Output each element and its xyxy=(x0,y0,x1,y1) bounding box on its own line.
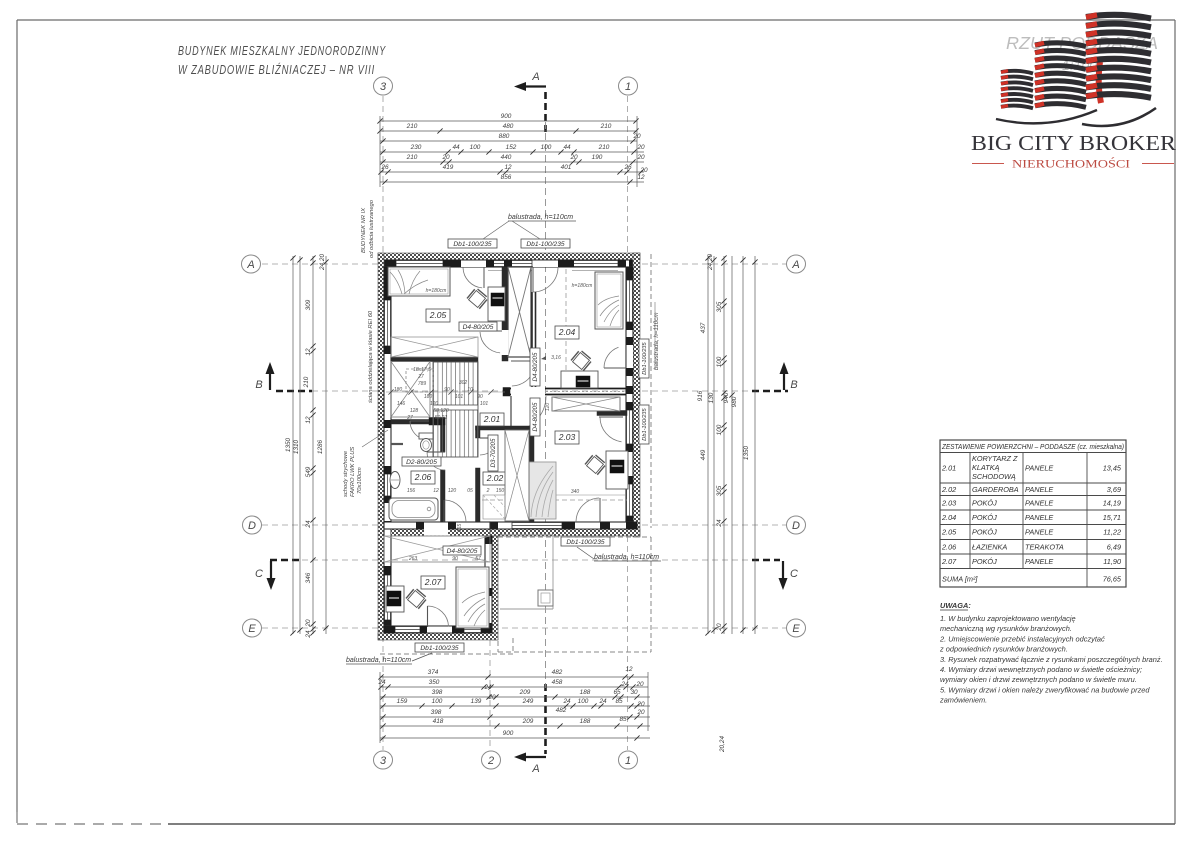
svg-text:12: 12 xyxy=(625,666,633,673)
svg-text:3: 3 xyxy=(380,81,387,93)
svg-text:398: 398 xyxy=(431,709,442,716)
svg-text:POKÓJ: POKÓJ xyxy=(972,557,997,566)
svg-text:940: 940 xyxy=(723,392,730,403)
svg-text:20: 20 xyxy=(636,701,645,708)
svg-text:ściana oddzielająca w klasi: ściana oddzielająca w klasie REI 60 xyxy=(368,310,374,403)
svg-text:398: 398 xyxy=(432,689,443,696)
svg-text:2.03: 2.03 xyxy=(941,498,956,507)
svg-text:h=180cm: h=180cm xyxy=(572,283,593,289)
svg-text:D: D xyxy=(248,520,256,532)
svg-text:26: 26 xyxy=(380,164,389,171)
svg-text:POKÓJ: POKÓJ xyxy=(972,498,997,507)
svg-text:NIERUCHOMOŚCI: NIERUCHOMOŚCI xyxy=(1012,157,1130,171)
svg-text:100: 100 xyxy=(578,698,589,705)
svg-text:14,19: 14,19 xyxy=(1103,498,1121,507)
svg-text:24: 24 xyxy=(305,630,312,639)
svg-text:50,21: 50,21 xyxy=(435,415,448,421)
svg-text:1350: 1350 xyxy=(743,445,750,460)
svg-text:A: A xyxy=(531,763,539,775)
svg-text:76,65: 76,65 xyxy=(1103,575,1122,584)
svg-text:180: 180 xyxy=(424,394,433,400)
svg-text:1: 1 xyxy=(625,755,631,767)
svg-text:11,90: 11,90 xyxy=(1103,557,1121,566)
svg-text:449: 449 xyxy=(700,449,707,460)
svg-text:20: 20 xyxy=(636,154,645,161)
svg-text:24: 24 xyxy=(620,681,629,688)
svg-text:24: 24 xyxy=(716,519,723,528)
svg-text:D2-80/205: D2-80/205 xyxy=(406,459,437,466)
svg-text:24,20: 24,20 xyxy=(707,254,714,271)
svg-text:balustrada, h=110cm: balustrada, h=110cm xyxy=(594,554,659,561)
svg-text:90: 90 xyxy=(452,556,458,562)
svg-text:Db1-100/235: Db1-100/235 xyxy=(642,341,648,374)
svg-text:PANELE: PANELE xyxy=(1025,485,1053,494)
svg-text:B: B xyxy=(255,379,262,391)
svg-text:D4-80/205: D4-80/205 xyxy=(532,352,539,381)
svg-text:12: 12 xyxy=(637,174,645,181)
svg-text:20: 20 xyxy=(569,154,578,161)
svg-text:2. Umiejscowienie przebić inst: 2. Umiejscowienie przebić instalacyjnych… xyxy=(939,634,1105,643)
svg-text:PANELE: PANELE xyxy=(1025,463,1053,472)
svg-text:419: 419 xyxy=(443,164,454,171)
svg-text:482: 482 xyxy=(556,707,567,714)
svg-text:C: C xyxy=(790,568,798,580)
svg-text:120: 120 xyxy=(430,401,439,407)
svg-text:20: 20 xyxy=(716,623,723,632)
svg-text:1286: 1286 xyxy=(317,439,324,454)
svg-text:3. Rysunek rozpatrywać łącznie: 3. Rysunek rozpatrywać łącznie z rysunka… xyxy=(940,655,1163,664)
svg-text:2.05: 2.05 xyxy=(941,528,957,537)
svg-text:2.07: 2.07 xyxy=(424,577,442,587)
svg-text:balustrada, h=110cm: balustrada, h=110cm xyxy=(508,214,573,221)
svg-text:2.01: 2.01 xyxy=(941,463,956,472)
svg-text:120: 120 xyxy=(545,403,551,412)
svg-text:437: 437 xyxy=(700,322,707,333)
svg-text:401: 401 xyxy=(561,164,572,171)
svg-text:4. Wymiary drzwi wewnętrznych: 4. Wymiary drzwi wewnętrznych podano w ś… xyxy=(940,665,1142,674)
svg-text:150: 150 xyxy=(496,488,505,494)
svg-text:190: 190 xyxy=(592,154,603,161)
svg-text:Db1-100/235: Db1-100/235 xyxy=(453,241,491,248)
svg-text:KLATKĄ: KLATKĄ xyxy=(972,463,1000,472)
svg-text:12: 12 xyxy=(504,164,512,171)
svg-text:20: 20 xyxy=(635,681,644,688)
svg-text:05: 05 xyxy=(467,488,473,494)
svg-text:100: 100 xyxy=(432,698,443,705)
svg-text:549: 549 xyxy=(305,466,312,477)
svg-text:zamówieniem.: zamówieniem. xyxy=(939,696,987,705)
svg-text:h=180cm: h=180cm xyxy=(426,288,447,294)
svg-text:90: 90 xyxy=(477,394,483,400)
svg-text:482: 482 xyxy=(552,669,563,676)
svg-text:210: 210 xyxy=(303,376,310,388)
svg-text:20: 20 xyxy=(487,694,496,701)
svg-text:100: 100 xyxy=(716,356,723,367)
svg-text:27: 27 xyxy=(406,415,413,421)
svg-text:PANELE: PANELE xyxy=(1025,498,1053,507)
svg-text:249: 249 xyxy=(522,698,534,705)
svg-text:100: 100 xyxy=(541,144,552,151)
svg-text:2.02: 2.02 xyxy=(941,485,956,494)
svg-text:305: 305 xyxy=(716,485,723,496)
svg-text:BIG CITY BROKER: BIG CITY BROKER xyxy=(971,131,1177,155)
svg-text:5. Wymiary drzwi i okien należ: 5. Wymiary drzwi i okien należy zweryfik… xyxy=(940,685,1150,694)
svg-text:W ZABUDOWIE BLIŹNIACZEJ –: W ZABUDOWIE BLIŹNIACZEJ – NR VIII xyxy=(178,62,375,77)
svg-text:65: 65 xyxy=(613,689,621,696)
svg-text:ZESTAWIENIE POWIERZCHNI – P: ZESTAWIENIE POWIERZCHNI – PODDASZE (cz. … xyxy=(941,442,1124,451)
svg-text:E: E xyxy=(248,623,256,635)
svg-text:480: 480 xyxy=(503,123,514,130)
svg-text:900: 900 xyxy=(503,730,514,737)
svg-text:balustrada, h=110cm: balustrada, h=110cm xyxy=(346,657,411,664)
svg-text:230: 230 xyxy=(410,144,422,151)
svg-text:2.02: 2.02 xyxy=(486,473,504,483)
svg-text:24,20: 24,20 xyxy=(319,254,326,271)
svg-text:PANELE: PANELE xyxy=(1025,513,1053,522)
svg-text:100: 100 xyxy=(716,424,723,435)
svg-text:139: 139 xyxy=(471,698,482,705)
svg-text:11,22: 11,22 xyxy=(1103,528,1121,537)
svg-text:BUDYNEK MIESZKALNY JEDNORODZ: BUDYNEK MIESZKALNY JEDNORODZINNY xyxy=(178,43,386,58)
svg-text:20: 20 xyxy=(305,619,312,628)
svg-text:2: 2 xyxy=(486,488,490,494)
svg-text:D3-70/205: D3-70/205 xyxy=(490,438,497,467)
svg-text:263: 263 xyxy=(408,556,418,562)
svg-text:B: B xyxy=(790,379,797,391)
svg-text:789: 789 xyxy=(418,381,427,387)
svg-text:458: 458 xyxy=(552,679,563,686)
svg-text:D4-80/205: D4-80/205 xyxy=(532,402,539,431)
svg-text:12: 12 xyxy=(433,488,439,494)
svg-text:188: 188 xyxy=(580,718,591,725)
svg-text:900: 900 xyxy=(501,113,512,120)
svg-text:26: 26 xyxy=(623,164,632,171)
svg-text:A: A xyxy=(246,259,254,271)
svg-text:12: 12 xyxy=(305,348,312,356)
svg-text:D4-80/205: D4-80/205 xyxy=(447,548,478,555)
svg-text:mechaniczną wg rysunków branżo: mechaniczną wg rysunków branżowych. xyxy=(940,624,1072,633)
svg-text:856: 856 xyxy=(501,174,512,181)
svg-text:440: 440 xyxy=(501,154,512,161)
svg-text:24: 24 xyxy=(483,684,492,691)
svg-text:Db1-100/235: Db1-100/235 xyxy=(642,407,648,440)
svg-text:156: 156 xyxy=(407,488,416,494)
svg-text:155: 155 xyxy=(457,524,463,533)
svg-text:130: 130 xyxy=(708,392,715,403)
svg-text:146: 146 xyxy=(397,401,406,407)
svg-text:85: 85 xyxy=(615,698,623,705)
svg-text:309: 309 xyxy=(305,299,312,310)
svg-text:PANELE: PANELE xyxy=(1025,557,1053,566)
svg-text:D: D xyxy=(792,520,800,532)
svg-text:20,24: 20,24 xyxy=(719,736,726,753)
svg-text:POKÓJ: POKÓJ xyxy=(972,528,997,537)
svg-text:2.04: 2.04 xyxy=(558,327,576,337)
svg-text:od odbicia lustrzanego: od odbicia lustrzanego xyxy=(369,199,375,258)
svg-text:44: 44 xyxy=(452,144,460,151)
svg-text:2.01: 2.01 xyxy=(483,414,501,424)
svg-text:TERAKOTA: TERAKOTA xyxy=(1025,542,1064,551)
svg-text:balustrada, h=110cm: balustrada, h=110cm xyxy=(653,313,660,371)
svg-text:100: 100 xyxy=(470,144,481,151)
svg-text:30: 30 xyxy=(630,689,638,696)
svg-text:916: 916 xyxy=(697,390,704,401)
svg-text:57: 57 xyxy=(475,556,481,562)
svg-text:85: 85 xyxy=(619,716,627,723)
svg-text:UWAGA:: UWAGA: xyxy=(940,601,971,610)
svg-text:128: 128 xyxy=(410,408,419,414)
svg-text:20: 20 xyxy=(441,154,450,161)
svg-text:SCHODOWĄ: SCHODOWĄ xyxy=(972,472,1016,481)
svg-text:209: 209 xyxy=(522,718,534,725)
svg-text:E: E xyxy=(792,623,800,635)
svg-text:980: 980 xyxy=(731,396,738,407)
svg-text:Db1-100/235: Db1-100/235 xyxy=(526,241,564,248)
svg-text:schody strychowe: schody strychowe xyxy=(343,450,349,497)
svg-text:210: 210 xyxy=(598,144,610,151)
svg-text:z odpowiednich rysunków branżo: z odpowiednich rysunków branżowych. xyxy=(939,645,1068,654)
svg-text:3,16: 3,16 xyxy=(551,355,561,361)
svg-text:PANELE: PANELE xyxy=(1025,528,1053,537)
svg-text:3,69: 3,69 xyxy=(1107,485,1121,494)
svg-text:GARDEROBA: GARDEROBA xyxy=(972,485,1019,494)
svg-text:346: 346 xyxy=(305,572,312,583)
svg-text:POKÓJ: POKÓJ xyxy=(972,513,997,522)
svg-text:FAKRO LWK PLUS: FAKRO LWK PLUS xyxy=(350,447,356,497)
svg-text:20: 20 xyxy=(636,144,645,151)
svg-text:wymiary okien i drzwi zewnętrz: wymiary okien i drzwi zewnętrznych podan… xyxy=(940,675,1137,684)
svg-text:Db1-100/235: Db1-100/235 xyxy=(566,539,604,546)
svg-text:2.06: 2.06 xyxy=(414,472,432,482)
svg-text:2.03: 2.03 xyxy=(558,432,576,442)
svg-text:70x100cm: 70x100cm xyxy=(357,467,363,494)
svg-text:58,120: 58,120 xyxy=(433,408,449,414)
svg-text:159: 159 xyxy=(397,698,408,705)
svg-text:20: 20 xyxy=(639,167,648,174)
svg-text:15,71: 15,71 xyxy=(1103,513,1121,522)
svg-text:12: 12 xyxy=(305,416,312,424)
svg-text:13,45: 13,45 xyxy=(1103,463,1122,472)
svg-text:3: 3 xyxy=(380,755,387,767)
svg-text:BUDYNEK NR IX: BUDYNEK NR IX xyxy=(361,207,367,253)
svg-text:101: 101 xyxy=(455,394,464,400)
svg-text:880: 880 xyxy=(499,133,510,140)
svg-text:A: A xyxy=(791,259,799,271)
svg-text:2.06: 2.06 xyxy=(941,542,957,551)
svg-text:24: 24 xyxy=(377,679,386,686)
svg-text:340: 340 xyxy=(571,489,580,495)
svg-text:101: 101 xyxy=(480,401,489,407)
svg-text:24: 24 xyxy=(562,698,571,705)
svg-text:SUMA [m²]: SUMA [m²] xyxy=(942,575,978,584)
svg-text:1: 1 xyxy=(625,81,631,93)
svg-text:209: 209 xyxy=(519,689,531,696)
svg-text:418: 418 xyxy=(433,718,444,725)
svg-text:ŁAZIENKA: ŁAZIENKA xyxy=(972,542,1007,551)
svg-text:210: 210 xyxy=(600,123,612,130)
svg-text:1310: 1310 xyxy=(293,439,300,454)
svg-text:1. W budynku zaprojektowano we: 1. W budynku zaprojektowano wentylację xyxy=(940,614,1076,623)
svg-text:305: 305 xyxy=(716,301,723,312)
svg-text:302: 302 xyxy=(459,380,468,386)
svg-text:152: 152 xyxy=(506,144,517,151)
svg-text:374: 374 xyxy=(428,669,439,676)
svg-text:6,49: 6,49 xyxy=(1107,542,1121,551)
svg-text:2.04: 2.04 xyxy=(941,513,956,522)
svg-text:2.05: 2.05 xyxy=(429,310,447,320)
svg-text:44: 44 xyxy=(563,144,571,151)
svg-text:210: 210 xyxy=(406,123,418,130)
svg-text:KORYTARZ Z: KORYTARZ Z xyxy=(972,454,1018,463)
svg-text:Db1-100/235: Db1-100/235 xyxy=(420,645,458,652)
svg-text:2: 2 xyxy=(487,755,494,767)
svg-text:2.07: 2.07 xyxy=(941,557,957,566)
svg-text:A: A xyxy=(531,71,539,83)
svg-text:24: 24 xyxy=(305,520,312,529)
svg-text:C: C xyxy=(255,568,263,580)
svg-text:350: 350 xyxy=(429,679,440,686)
svg-text:1350: 1350 xyxy=(285,437,292,452)
svg-text:188: 188 xyxy=(580,689,591,696)
svg-text:20: 20 xyxy=(636,709,645,716)
svg-text:18x17,5: 18x17,5 xyxy=(413,367,431,373)
svg-text:210: 210 xyxy=(406,154,418,161)
svg-text:24: 24 xyxy=(598,698,607,705)
svg-text:D4-80/205: D4-80/205 xyxy=(463,324,494,331)
svg-text:120: 120 xyxy=(448,488,457,494)
svg-text:27: 27 xyxy=(417,374,424,380)
